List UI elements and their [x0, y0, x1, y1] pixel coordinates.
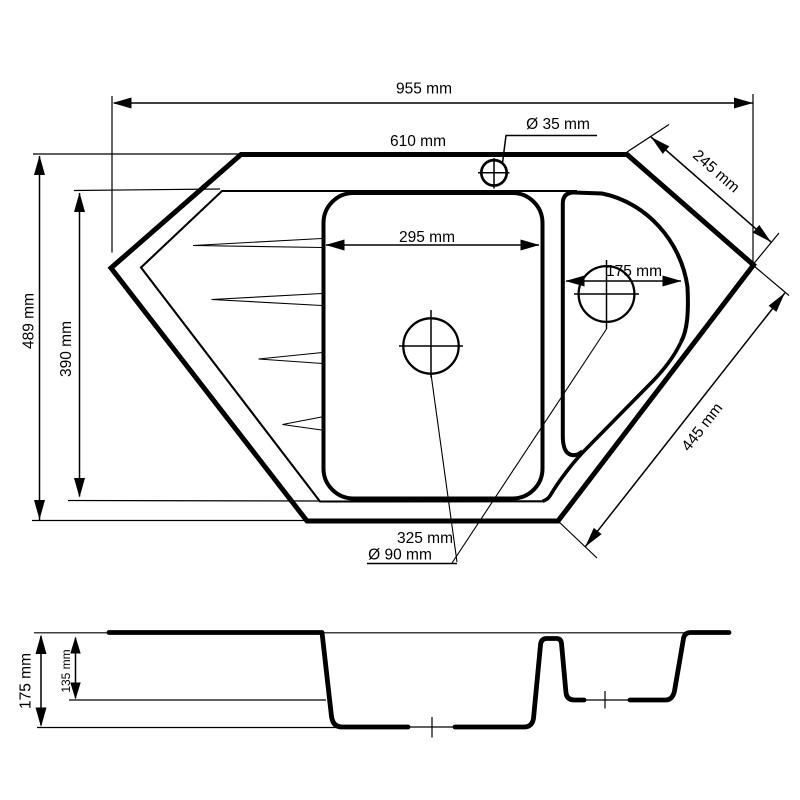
svg-text:390 mm: 390 mm: [58, 321, 75, 377]
svg-text:135 mm: 135 mm: [59, 649, 73, 692]
svg-text:610 mm: 610 mm: [390, 133, 446, 150]
svg-text:955 mm: 955 mm: [396, 81, 452, 98]
svg-text:489 mm: 489 mm: [20, 293, 37, 349]
svg-text:Ø 35 mm: Ø 35 mm: [526, 116, 590, 133]
svg-text:295 mm: 295 mm: [399, 229, 455, 246]
svg-text:175 mm: 175 mm: [606, 263, 662, 280]
svg-text:Ø 90 mm: Ø 90 mm: [368, 547, 432, 564]
svg-text:175 mm: 175 mm: [18, 653, 35, 709]
svg-text:325 mm: 325 mm: [397, 530, 453, 547]
